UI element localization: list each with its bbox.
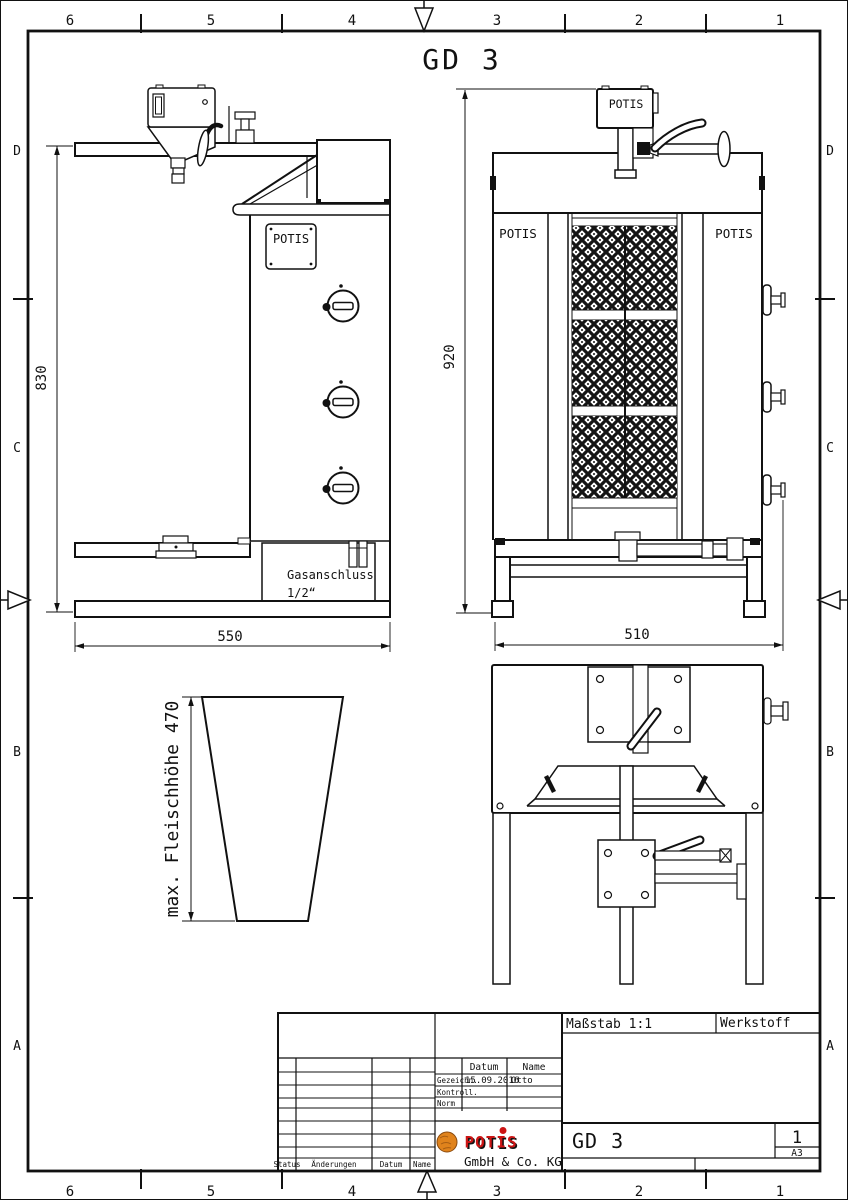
date-column-header: Datum [470, 1062, 499, 1073]
center-mark-bottom [418, 1171, 436, 1200]
potis-plate-label: POTIS [273, 232, 309, 246]
base-frame [492, 532, 765, 617]
revision-name-label: Name [413, 1160, 432, 1169]
material-label: Werkstoff [720, 1016, 790, 1031]
base-rail [75, 601, 390, 617]
front-view: POTIS POTIS POTIS [442, 86, 785, 651]
grease-hopper [148, 85, 221, 183]
meat-cone-view: max. Fleischhöhe 470 [162, 697, 343, 921]
center-mark-right [818, 591, 848, 609]
drawn-name: Otto [511, 1076, 533, 1086]
lower-mount-plate [598, 840, 746, 907]
leg-right [746, 813, 763, 984]
gas-label-line1: Gasanschluss [287, 568, 374, 582]
col-label: 4 [348, 1184, 356, 1200]
dim-830: 830 [34, 146, 73, 612]
col-label: 1 [776, 1184, 784, 1200]
row-label: B [826, 745, 834, 760]
status-label: Status [273, 1160, 300, 1169]
border-row-labels: D C B A D C B A [13, 144, 834, 1054]
col-label: 1 [776, 13, 784, 29]
title-block: Maßstab 1:1 Werkstoff Datum Name Gezeich… [273, 1013, 820, 1171]
drawing-title: GD 3 [422, 43, 501, 76]
name-column-header: Name [523, 1062, 546, 1073]
gas-knob-3 [323, 466, 359, 503]
changes-label: Änderungen [311, 1160, 356, 1169]
logo-flame-dot-icon [500, 1127, 507, 1134]
col-label: 5 [207, 13, 215, 29]
col-label: 6 [66, 1184, 74, 1200]
left-foot [492, 601, 513, 617]
col-label: 6 [66, 13, 74, 29]
clamp-rod [658, 144, 723, 154]
dim-830-label: 830 [34, 365, 50, 390]
right-panel-label: POTIS [715, 226, 753, 241]
norm-row-label: Norm [437, 1099, 456, 1108]
motor-housing-side [317, 140, 390, 203]
dim-550-label: 550 [217, 629, 242, 645]
gas-label-line2: 1/2“ [287, 586, 316, 600]
upper-mount-plate [588, 665, 690, 753]
meat-cone-outline [202, 697, 343, 921]
lower-clamp [156, 536, 196, 558]
paper-format: A3 [791, 1148, 802, 1159]
scale-label: Maßstab 1:1 [566, 1017, 652, 1032]
gas-knob-2 [323, 380, 359, 417]
valve-knob-2 [763, 382, 785, 412]
row-label: D [13, 144, 21, 159]
logo-text: POTIS [465, 1133, 518, 1152]
sheet-number: 1 [792, 1128, 802, 1148]
row-label: C [826, 441, 834, 456]
valve-knob-3 [763, 475, 785, 505]
t-handle [737, 864, 746, 899]
left-panel-label: POTIS [499, 226, 537, 241]
dim-550: 550 [75, 622, 390, 652]
tray-clamp-screw [229, 106, 255, 143]
potis-plate: POTIS [266, 224, 316, 269]
technical-drawing: 6 5 4 3 2 1 6 5 4 3 2 1 D C B A D C B A … [0, 0, 848, 1200]
center-mark-left [0, 591, 30, 609]
clamp-handle-knob [718, 132, 730, 167]
potis-logo: POTIS POTIS GmbH & Co. KG [437, 1127, 562, 1169]
dim-920-label: 920 [442, 344, 458, 369]
dim-fleischhoehe-label: max. Fleischhöhe 470 [162, 701, 183, 918]
col-label: 3 [493, 13, 501, 29]
dim-510-label: 510 [624, 627, 649, 643]
motor-label: POTIS [609, 97, 644, 111]
col-label: 2 [635, 1184, 643, 1200]
gas-knob-1 [323, 284, 359, 321]
col-label: 3 [493, 1184, 501, 1200]
col-label: 5 [207, 1184, 215, 1200]
top-view [492, 665, 788, 984]
checked-row-label: Kontroll. [437, 1088, 478, 1097]
right-foot [744, 601, 765, 617]
logo-meatball-icon [437, 1132, 457, 1152]
row-label: B [13, 745, 21, 760]
top-view-knob [764, 698, 788, 724]
row-label: A [13, 1039, 21, 1054]
drawing-sheet: 6 5 4 3 2 1 6 5 4 3 2 1 D C B A D C B A … [0, 0, 848, 1200]
company-name: GmbH & Co. KG [464, 1154, 562, 1169]
leg-left [493, 813, 510, 984]
row-label: C [13, 441, 21, 456]
revision-date-label: Datum [380, 1160, 403, 1169]
col-label: 2 [635, 13, 643, 29]
valve-knob-1 [763, 285, 785, 315]
burner-mesh [572, 218, 677, 508]
center-mark-top [415, 0, 433, 31]
side-view: POTIS Gasanschluss 1/2“ [34, 85, 390, 652]
row-label: A [826, 1039, 834, 1054]
row-label: D [826, 144, 834, 159]
drawing-number: GD 3 [572, 1129, 624, 1153]
col-label: 4 [348, 13, 356, 29]
